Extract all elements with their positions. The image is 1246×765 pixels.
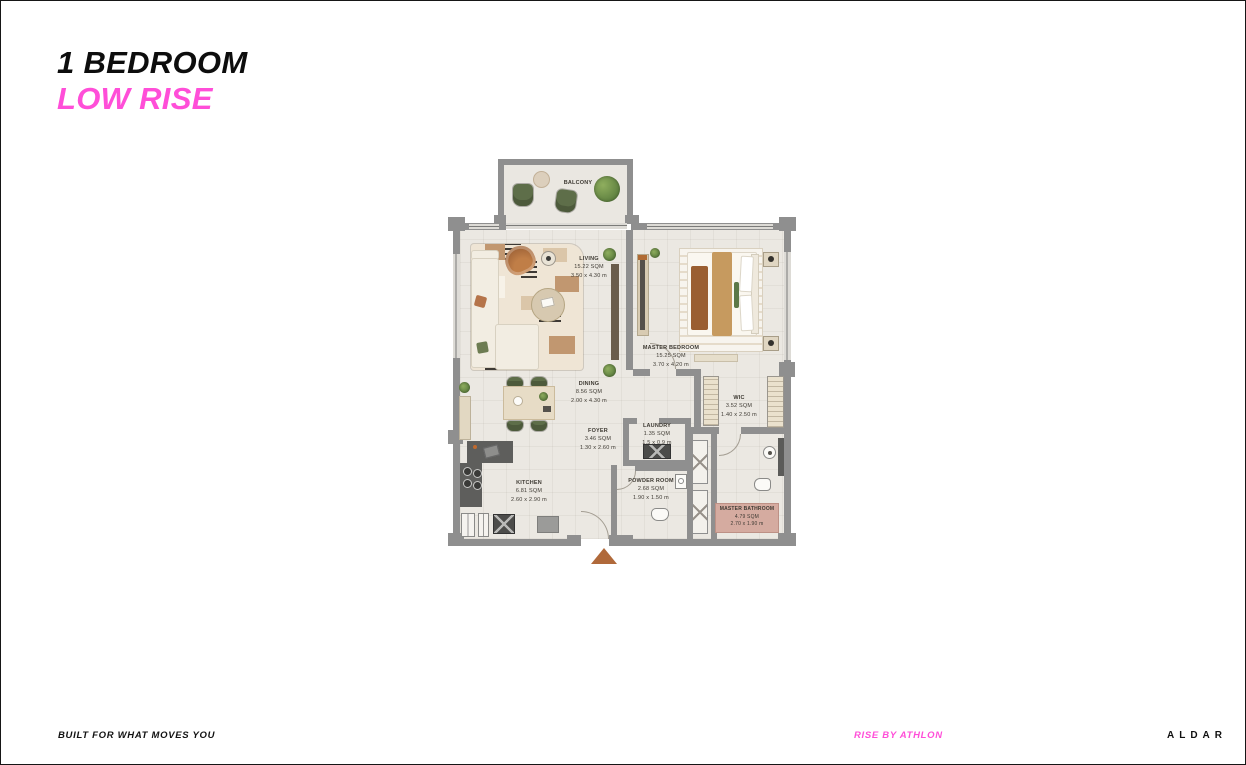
stove-burner [463,479,472,488]
room-label-laundry: LAUNDRY 1.35 SQM 1.5 x 0.9 m [642,422,671,447]
toilet [651,508,669,521]
room-label-dining: DINING 8.56 SQM 2.00 x 4.30 m [571,380,607,405]
accent-pillow [734,282,739,308]
wall [635,465,687,471]
closet [692,440,708,484]
bed-runner-tan [712,252,732,336]
plant [603,364,616,377]
footer-brand-logo: ALDAR [1167,730,1227,741]
room-label-kitchen: KITCHEN 6.81 SQM 2.60 x 2.90 m [511,479,547,504]
entry-marker [591,548,617,564]
room-label-powder-room: POWDER ROOM 2.68 SQM 1.90 x 1.50 m [628,477,674,502]
room-label-living: LIVING 15.22 SQM 3.50 x 4.30 m [571,255,607,280]
sideboard [459,396,471,440]
appliance-block [537,516,559,533]
stove-burner [463,467,472,476]
window [784,252,791,360]
wall [498,159,504,223]
dining-chair [507,421,523,431]
stove-burner [473,469,482,478]
window [647,224,773,229]
rug-patch [549,336,575,354]
toilet [754,478,771,491]
wardrobe [767,376,784,428]
shower-screen [778,438,784,476]
room-label-wic: WIC 3.52 SQM 1.40 x 2.50 m [721,394,757,419]
bed-bench [694,354,738,362]
entry-jamb [567,535,581,546]
nightstand-lamp [768,340,774,346]
console-decor [638,255,647,260]
sink-basin [678,478,684,484]
dining-table [503,386,555,420]
balcony-chair [513,184,533,206]
footer-tagline: BUILT FOR WHAT MOVES YOU [58,730,215,741]
wall [694,369,701,434]
built-in-appliance [478,513,489,537]
bed-pillow [739,256,754,293]
brochure-page: 1 BEDROOM LOW RISE BALCONY [0,0,1246,765]
bed-throw-dark [691,266,708,330]
room-label-master-bathroom: MASTER BATHROOM 4.79 SQM 2.70 x 1.90 m [720,506,775,529]
floor-plan: BALCONY [451,156,793,568]
room-label-foyer: FOYER 3.46 SQM 1.30 x 2.60 m [580,427,616,452]
sink-drain [768,451,772,455]
wall [453,539,581,546]
nightstand-lamp [768,256,774,262]
bed-pillow [739,295,754,332]
wall [627,159,633,223]
wardrobe [703,376,719,426]
built-in-appliance [461,513,475,537]
title-line-1: 1 BEDROOM [57,45,247,81]
wall [633,369,650,376]
closet [692,490,708,534]
wall [623,418,629,466]
wall-column [779,362,795,377]
wall [689,427,719,434]
wall-column [448,217,465,231]
window [469,224,499,229]
balcony-plant [594,176,620,202]
plant [459,382,470,393]
sofa-chaise [495,324,539,370]
balcony-sliding-door [506,223,627,229]
kitchen-fruit [473,445,477,449]
wall [498,159,633,165]
floor-lamp-bulb [546,256,551,261]
room-label-master-bedroom: MASTER BEDROOM 15.25 SQM 3.70 x 4.20 m [643,344,699,369]
throw-pillow [476,341,489,354]
balcony-table [533,171,550,188]
dining-plant [539,392,548,401]
wall [609,539,791,546]
room-label-balcony: BALCONY [564,179,593,187]
title-line-2: LOW RISE [57,81,247,117]
dining-plate [513,396,523,406]
wall-column [778,533,796,546]
dining-chair [531,421,547,431]
footer-brand-sub: RISE BY ATHLON [854,730,943,741]
tv-console-living [611,264,619,360]
plant [650,248,660,258]
dining-tray [543,406,551,412]
wall [676,369,694,376]
stove-burner [473,481,482,490]
page-title: 1 BEDROOM LOW RISE [57,45,247,117]
wall [741,427,784,434]
window [453,254,460,358]
wall-column [779,217,796,231]
kitchen-sink-unit [493,514,515,534]
tv-panel [640,260,645,330]
wall-living-bedroom-divider [626,230,633,370]
